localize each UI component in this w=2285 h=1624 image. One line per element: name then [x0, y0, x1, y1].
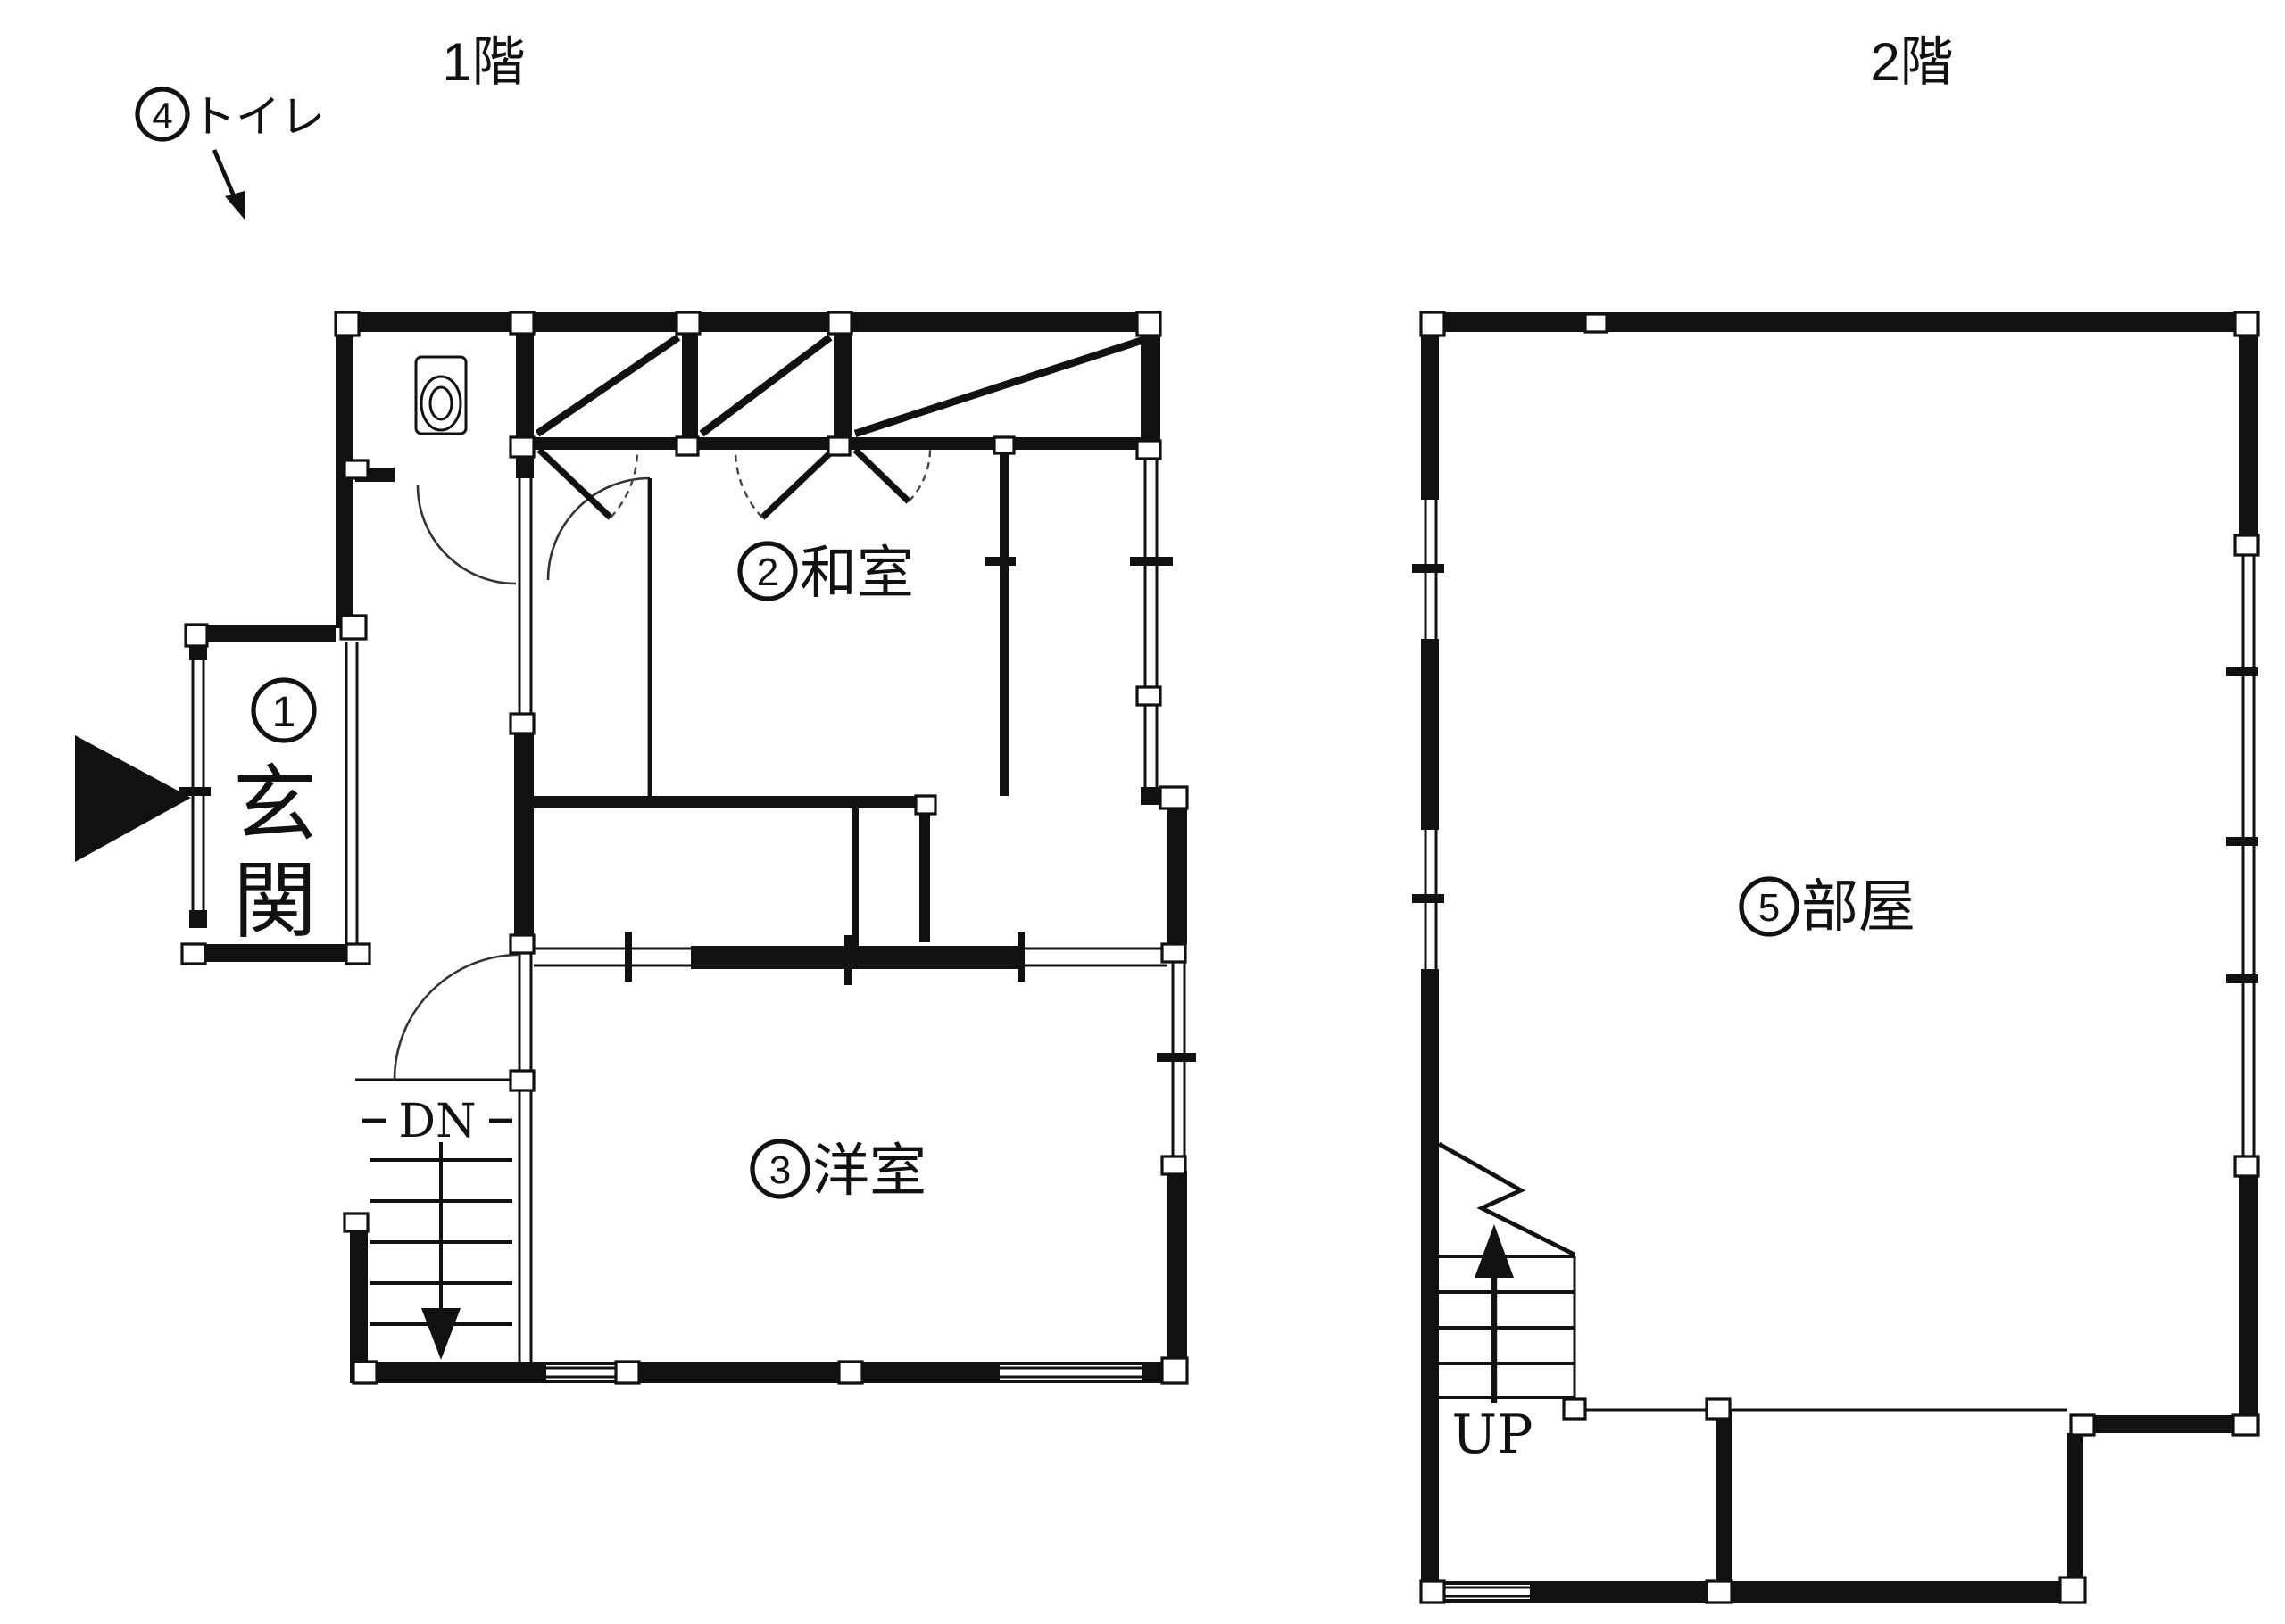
floor1-plan: 1階 4 トイレ DN	[75, 32, 1196, 1383]
youshitsu-number: 3	[769, 1148, 791, 1192]
up-arrow-icon	[1475, 1224, 1514, 1403]
heya-number: 5	[1758, 886, 1780, 930]
floor2-plan: 2階 UP 5 部屋	[1412, 32, 2258, 1603]
floor2-title: 2階	[1870, 32, 1953, 92]
youshitsu-label: 洋室	[812, 1139, 926, 1203]
folding-door-flaps	[539, 450, 909, 518]
floorplan-canvas: 1階 4 トイレ DN	[0, 0, 2285, 1624]
floor1-title: 1階	[442, 32, 525, 92]
entrance-number: 1	[272, 689, 296, 736]
floorplan-page: 1階 4 トイレ DN	[0, 0, 2285, 1624]
floor2-up-stairs: UP	[1439, 1144, 1575, 1466]
toilet-label: トイレ	[191, 92, 325, 142]
dn-label: DN	[398, 1095, 476, 1148]
entrance-label-char1: 玄	[233, 758, 317, 851]
floor1-folding-doors	[539, 450, 930, 518]
toilet-callout: 4 トイレ	[137, 89, 325, 220]
washitsu-label: 和室	[800, 541, 914, 605]
floor1-dn-stairs: DN	[362, 1095, 512, 1360]
entrance-arrow-icon	[75, 735, 191, 862]
entrance-label-char2: 関	[233, 854, 317, 948]
floor1-pillars	[182, 312, 1187, 1383]
toilet-icon	[416, 357, 466, 434]
entrance-room-label: 1 玄 関	[233, 680, 317, 948]
washitsu-number: 2	[757, 551, 778, 594]
toilet-leader-arrow-icon	[214, 150, 245, 220]
stair-break-line	[1439, 1144, 1575, 1255]
floor1-walls	[179, 312, 1196, 1383]
heya-label: 部屋	[1801, 874, 1915, 939]
toilet-number: 4	[152, 95, 172, 137]
up-label: UP	[1452, 1404, 1533, 1466]
stair-treads	[370, 1142, 512, 1324]
heya-room-label: 5 部屋	[1741, 874, 1915, 939]
washitsu-room-label: 2 和室	[740, 541, 914, 605]
youshitsu-room-label: 3 洋室	[752, 1139, 926, 1203]
dn-arrow-icon	[421, 1308, 461, 1360]
